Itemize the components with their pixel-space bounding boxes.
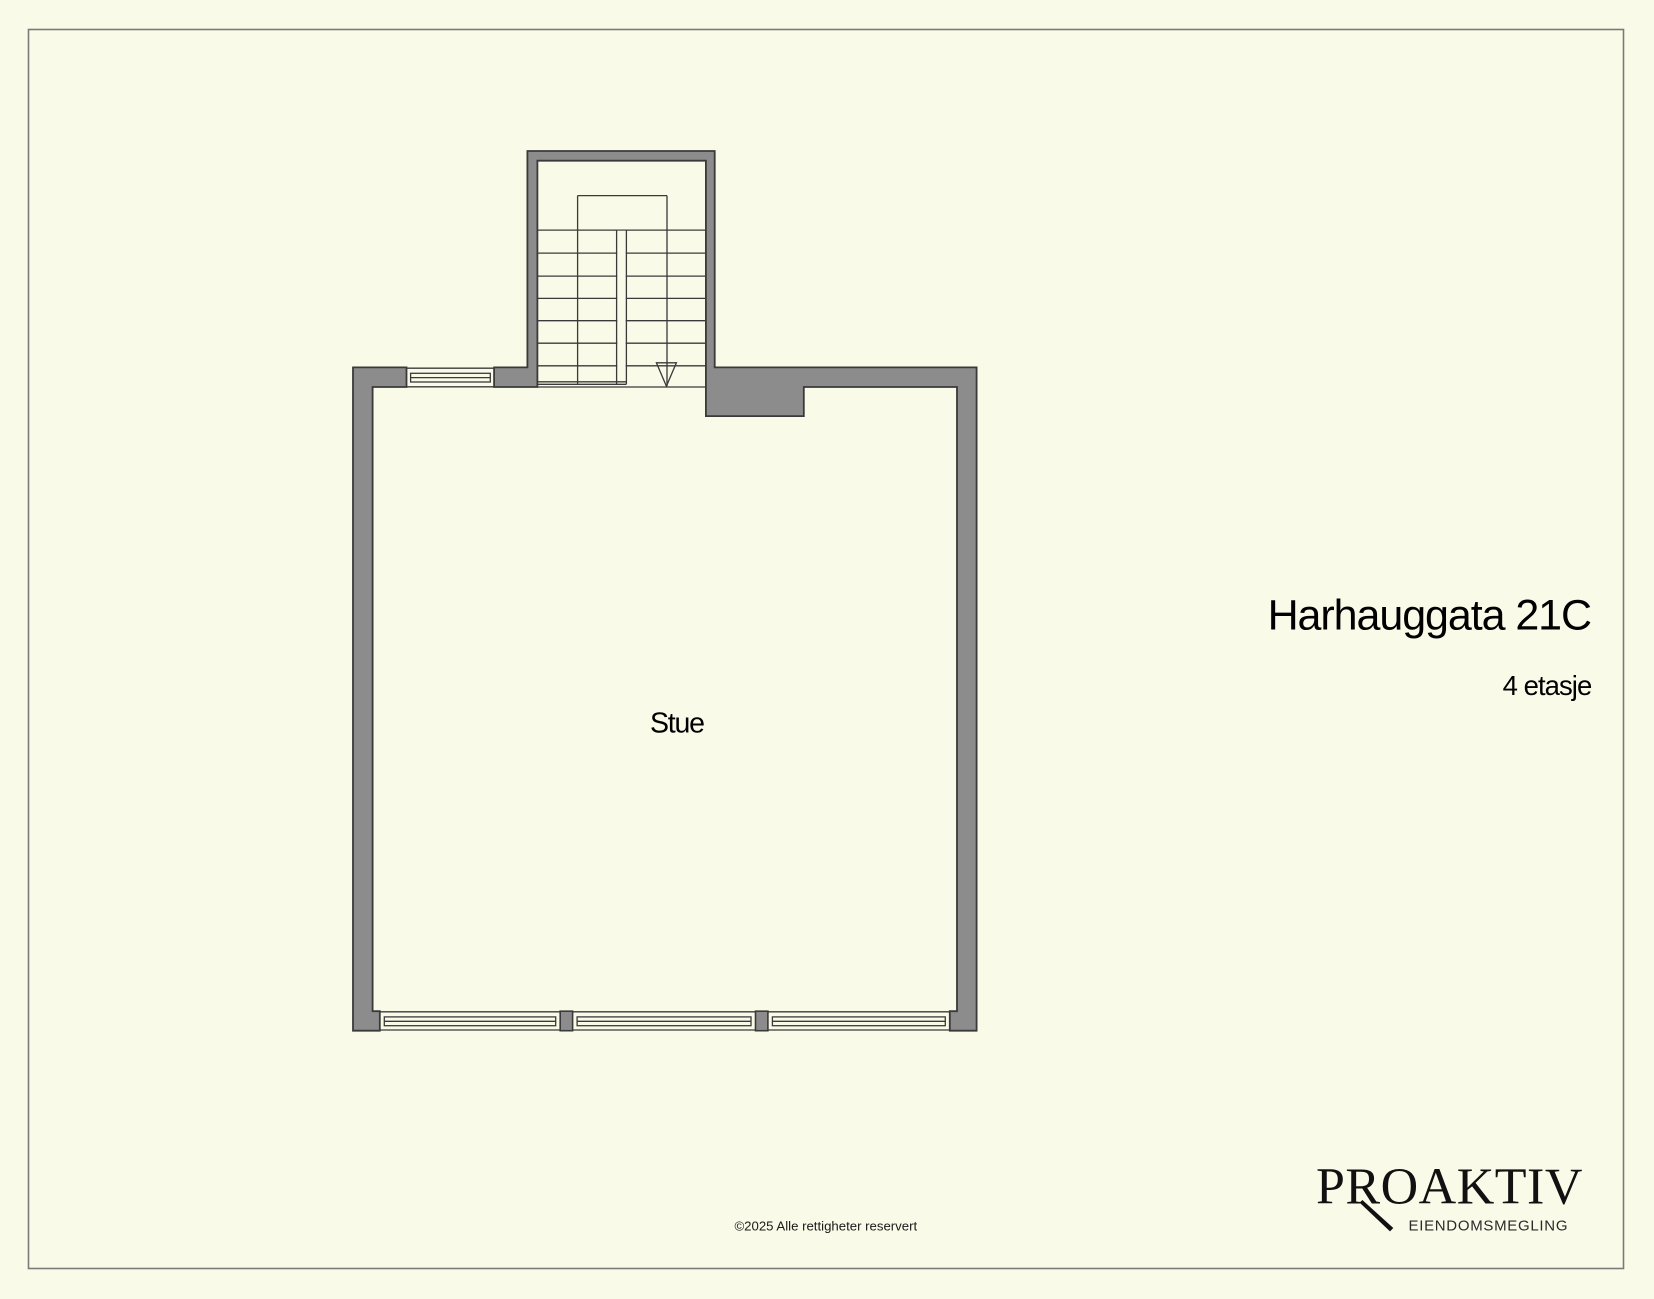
svg-text:EIENDOMSMEGLING: EIENDOMSMEGLING: [1409, 1217, 1569, 1234]
svg-text:PROAKTIV: PROAKTIV: [1316, 1159, 1583, 1216]
svg-text:4 etasje: 4 etasje: [1503, 670, 1592, 701]
svg-text:Stue: Stue: [650, 708, 704, 740]
svg-text:©2025 Alle rettigheter reserve: ©2025 Alle rettigheter reservert: [734, 1218, 917, 1233]
svg-text:Harhauggata 21C: Harhauggata 21C: [1268, 592, 1591, 640]
